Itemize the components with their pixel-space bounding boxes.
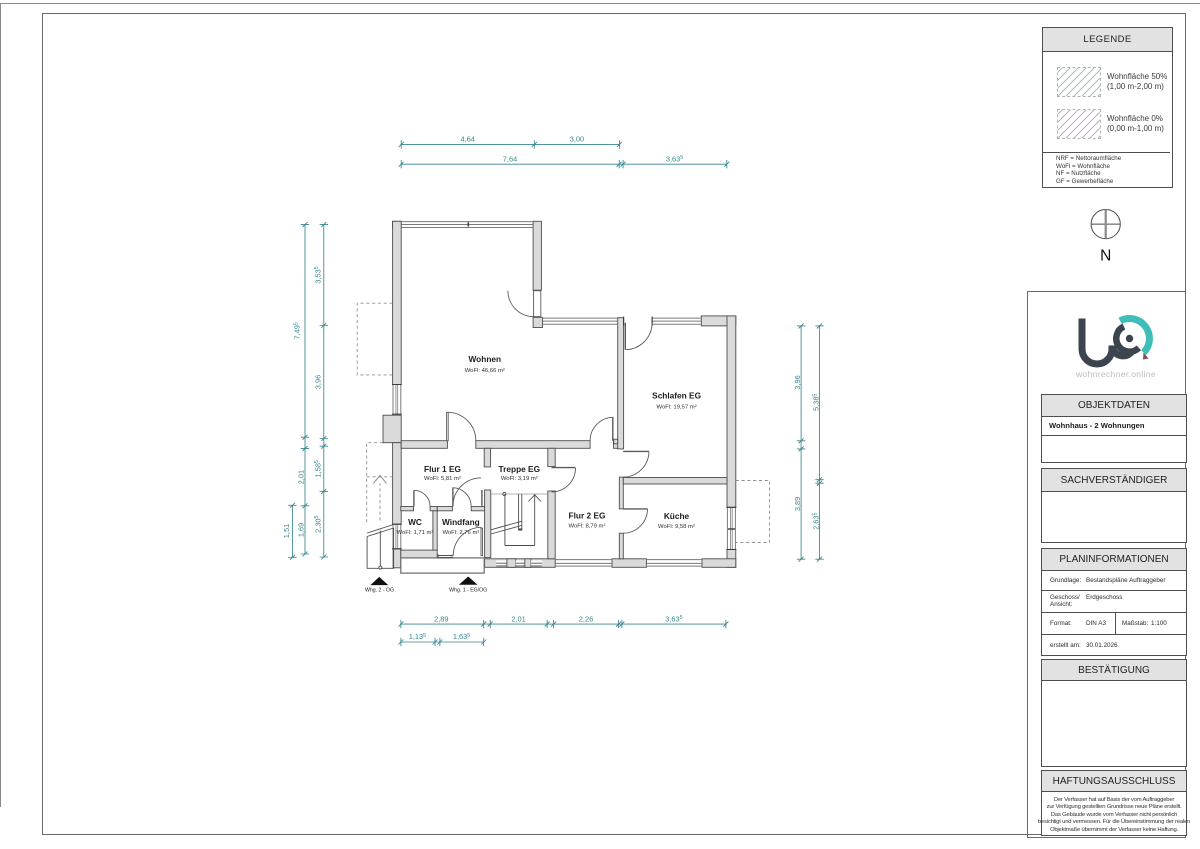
svg-text:3,535: 3,535	[313, 266, 322, 283]
svg-text:WoFl: 46,66 m²: WoFl: 46,66 m²	[465, 368, 505, 374]
svg-text:WoFl: 8,79 m²: WoFl: 8,79 m²	[569, 524, 606, 530]
svg-text:3,635: 3,635	[665, 614, 682, 623]
svg-text:Flur 1 EG: Flur 1 EG	[424, 464, 461, 474]
svg-text:1,135: 1,135	[409, 632, 426, 641]
svg-text:2,01: 2,01	[511, 614, 525, 623]
svg-text:WC: WC	[408, 517, 422, 527]
svg-text:2,305: 2,305	[313, 515, 322, 532]
svg-text:Wohnen: Wohnen	[469, 354, 502, 364]
svg-text:3,00: 3,00	[570, 135, 584, 144]
svg-text:2,26: 2,26	[579, 614, 593, 623]
svg-text:Whg. 2 - OG: Whg. 2 - OG	[365, 588, 394, 594]
svg-text:1,585: 1,585	[313, 460, 322, 477]
svg-text:WoFl: 19,57 m²: WoFl: 19,57 m²	[657, 404, 697, 410]
svg-text:WoFl: 3,19 m²: WoFl: 3,19 m²	[501, 476, 538, 482]
svg-text:3,96: 3,96	[313, 375, 322, 389]
svg-text:Whg. 1 - EG/OG: Whg. 1 - EG/OG	[449, 588, 487, 594]
svg-text:Schlafen EG: Schlafen EG	[652, 390, 701, 400]
svg-text:Küche: Küche	[664, 511, 690, 521]
svg-text:7,495: 7,495	[293, 322, 302, 339]
svg-text:wohnrechner.online: wohnrechner.online	[1075, 369, 1156, 379]
svg-text:WoFl: 5,81 m²: WoFl: 5,81 m²	[424, 476, 461, 482]
svg-text:Treppe EG: Treppe EG	[499, 464, 541, 474]
svg-text:Windfang: Windfang	[442, 517, 480, 527]
svg-text:4,64: 4,64	[461, 135, 475, 144]
svg-text:WoFl: 1,71 m²: WoFl: 1,71 m²	[397, 530, 434, 536]
svg-text:3,89: 3,89	[793, 497, 802, 511]
svg-text:3,96: 3,96	[793, 375, 802, 389]
svg-text:Flur 2 EG: Flur 2 EG	[569, 510, 606, 520]
svg-text:1,51: 1,51	[282, 524, 291, 538]
svg-text:2,01: 2,01	[296, 470, 305, 484]
svg-text:1,69: 1,69	[296, 523, 305, 537]
svg-text:WoFl: 9,58 m²: WoFl: 9,58 m²	[658, 524, 695, 530]
svg-text:N: N	[1100, 248, 1111, 265]
svg-text:WoFl: 2,76 m²: WoFl: 2,76 m²	[442, 530, 479, 536]
svg-text:2,89: 2,89	[434, 614, 448, 623]
svg-text:3,635: 3,635	[666, 154, 683, 163]
svg-text:1,635: 1,635	[453, 632, 470, 641]
svg-text:7,64: 7,64	[503, 154, 517, 163]
